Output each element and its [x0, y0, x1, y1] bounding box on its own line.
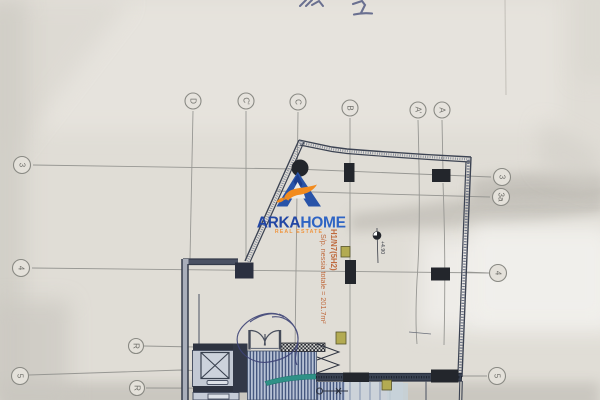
svg-text:R: R	[133, 385, 142, 391]
svg-text:B: B	[346, 105, 355, 110]
svg-text:S/p. nessia totale = 201.7m²: S/p. nessia totale = 201.7m²	[319, 234, 328, 324]
svg-text:3a: 3a	[497, 193, 506, 202]
svg-text:4: 4	[494, 271, 503, 276]
svg-text:+4.90: +4.90	[379, 241, 385, 254]
svg-text:5: 5	[16, 374, 25, 379]
svg-text:REAL ESTATE: REAL ESTATE	[275, 229, 323, 235]
svg-text:4: 4	[17, 266, 26, 271]
svg-text:C: C	[294, 99, 303, 105]
svg-text:A': A'	[414, 107, 423, 114]
svg-text:5: 5	[493, 374, 502, 379]
svg-text:C': C'	[242, 97, 251, 105]
svg-text:D: D	[189, 98, 198, 104]
svg-text:A: A	[438, 107, 447, 113]
svg-text:R: R	[132, 343, 141, 349]
svg-text:H1/N7(5H2): H1/N7(5H2)	[329, 229, 338, 271]
svg-text:3: 3	[18, 163, 27, 168]
svg-text:3: 3	[498, 175, 507, 180]
